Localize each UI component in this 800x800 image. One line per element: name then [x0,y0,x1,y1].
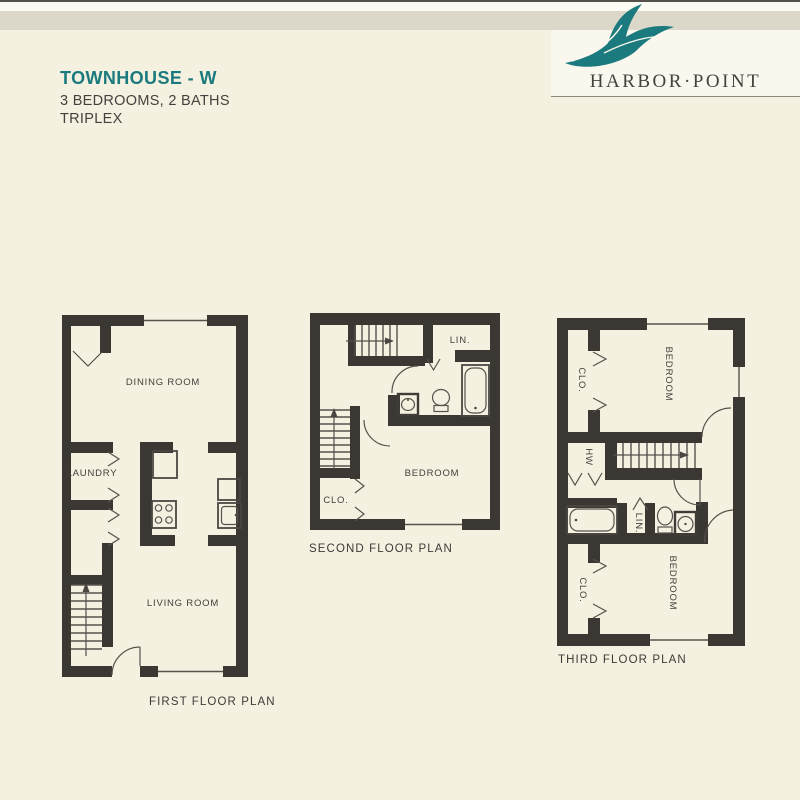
bathroom-door-arc [392,366,418,393]
dining-room-label: DINING ROOM [126,377,200,388]
harbor-point-wave-icon [562,3,697,75]
laundry-label: LAUNDRY [67,468,118,479]
front-door-arc [112,647,140,675]
toilet [658,507,673,533]
third-floor-plan: CLO. BEDROOM HW LIN. CLO. BEDROOM [557,316,745,646]
unit-title: TOWNHOUSE - W [60,68,217,89]
bathroom-sink [675,512,696,535]
first-floor-walls [62,315,248,677]
refrigerator [153,451,177,478]
stove [152,501,176,528]
laundry-closet-doors [108,452,119,546]
bathtub [567,506,617,534]
bathtub [462,365,489,416]
closet-top-label: CLO. [576,367,587,392]
third-floor-windows [647,324,739,640]
bedroom-bottom-label: BEDROOM [667,556,678,611]
first-floor-caption: FIRST FLOOR PLAN [149,696,276,708]
closet-label: CLO. [323,495,348,506]
closet-bottom-doors [593,559,606,618]
stairs-from-first [320,408,350,469]
linen-label: LIN. [633,513,644,534]
living-room-label: LIVING ROOM [147,598,219,609]
first-floor-windows [144,321,223,672]
bedroom-door-arc [364,420,390,446]
bathroom-door-arc [674,479,700,505]
first-floor-plan: DINING ROOM LAUNDRY LIVING ROOM [62,313,248,679]
water-heater-label: HW [583,448,594,465]
unit-specs: 3 BEDROOMS, 2 BATHS [60,93,230,109]
unit-type: TRIPLEX [60,111,123,127]
entry-closet-door [73,351,102,366]
linen-label: LIN. [450,335,471,346]
water-heater-doors [568,473,602,485]
brand-name: HARBOR·POINT [551,71,800,93]
closet-top-doors [593,352,606,412]
closet-bottom-label: CLO. [577,577,588,602]
second-floor-caption: SECOND FLOOR PLAN [309,543,453,555]
bedroom-top-door-arc [702,408,731,437]
stairs-first-floor [71,582,102,656]
third-floor-caption: THIRD FLOOR PLAN [558,654,687,666]
bedroom-bottom-door-arc [705,510,733,543]
bedroom-label: BEDROOM [405,468,460,479]
stairs-from-second [613,443,695,468]
closet-doors [355,479,364,521]
bedroom-top-label: BEDROOM [663,347,674,402]
second-floor-plan: LIN. CLO. BEDROOM [308,311,502,532]
toilet [433,390,450,412]
bathroom-sink [398,394,418,415]
